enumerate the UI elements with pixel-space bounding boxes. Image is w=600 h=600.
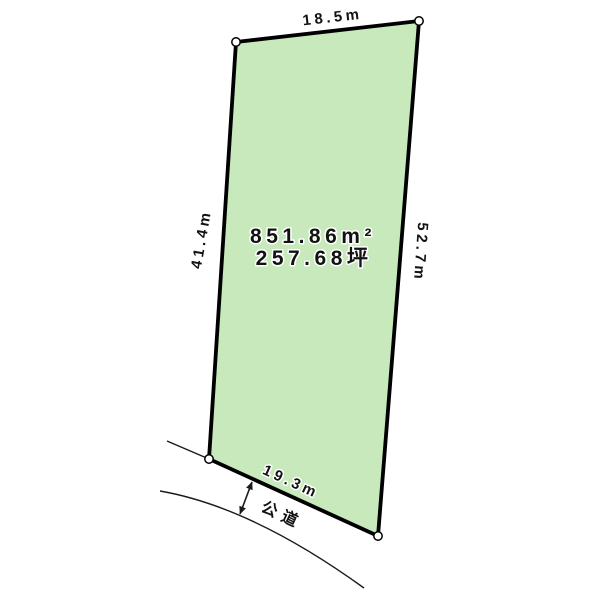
plot-polygon xyxy=(209,21,419,536)
corner-marker-top-left xyxy=(232,38,240,46)
dimension-label-left: 41.4m xyxy=(188,208,215,270)
road-width-arrow-icon xyxy=(240,482,252,514)
corner-marker-bottom-left xyxy=(205,455,213,463)
road-upper-edge-line xyxy=(167,441,209,459)
corner-marker-top-right xyxy=(415,17,423,25)
diagram-canvas: 18.5m 41.4m 52.7m 19.3m 851.86m² 257.68坪… xyxy=(0,0,600,600)
corner-marker-bottom-right xyxy=(374,532,382,540)
area-label-square-meters: 851.86m² xyxy=(250,225,376,248)
area-label-tsubo: 257.68坪 xyxy=(256,247,373,270)
dimension-label-right: 52.7m xyxy=(410,222,431,283)
land-plot-diagram: 18.5m 41.4m 52.7m 19.3m 851.86m² 257.68坪… xyxy=(0,0,600,600)
dimension-label-top: 18.5m xyxy=(302,6,364,30)
